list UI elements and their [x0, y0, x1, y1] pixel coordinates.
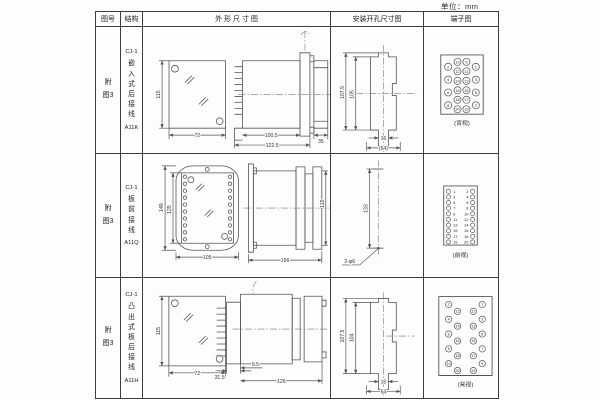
dim-side-length: 156 — [281, 258, 290, 264]
svg-text:11: 11 — [464, 69, 468, 74]
svg-text:15: 15 — [471, 339, 475, 343]
terminal-dots-left — [183, 175, 186, 241]
fig-no-row3: 附图3 — [96, 278, 121, 398]
svg-text:14: 14 — [455, 324, 459, 328]
dim-side-height: 115 — [320, 199, 326, 207]
install-drawing-a11q: 133 2-φ6 — [331, 154, 423, 277]
svg-text:2: 2 — [448, 303, 450, 307]
dimension-table: 图号 结构 外 形 尺 寸 图 安装开孔尺寸图 端子图 附图3 CJ-1 嵌入式… — [95, 11, 499, 399]
model-label: CJ-1 — [125, 292, 137, 298]
install-cell-row3: 107.5 104 16 64 — [331, 278, 424, 398]
svg-text:1: 1 — [481, 303, 483, 307]
svg-text:17: 17 — [453, 234, 457, 239]
svg-text:16: 16 — [455, 339, 459, 343]
svg-text:14: 14 — [464, 223, 469, 228]
view-label: (前视) — [453, 251, 469, 259]
terminal-diagram-a11k: 2468135710121416182091113151719 (背视) — [424, 27, 498, 153]
dim-install-slot: 16 — [381, 380, 387, 386]
svg-text:6: 6 — [448, 332, 450, 336]
svg-text:11: 11 — [453, 217, 457, 222]
svg-text:17: 17 — [471, 354, 475, 358]
outline-cell-row1: 115 72 100.5 122.5 35 — [143, 27, 331, 154]
dim-side-outer: 122.5 — [266, 143, 279, 149]
dim-front-height: 115 — [156, 90, 162, 98]
svg-text:7: 7 — [481, 347, 483, 351]
svg-text:4: 4 — [466, 194, 469, 199]
type-code: A11H — [124, 378, 138, 384]
svg-text:3: 3 — [453, 194, 456, 199]
terminal-diagram-a11h: 2468101214161820111315171913579 (背视) — [424, 278, 498, 398]
dim-install-inner-h: 104 — [350, 334, 356, 343]
install-drawing-a11k: 107.5 105 16 (64) — [331, 27, 423, 153]
svg-text:2: 2 — [466, 189, 468, 194]
dim-install-outer-h: 107.5 — [340, 86, 346, 99]
terminal-circles: 1234567891011121314151617181920 — [446, 189, 474, 245]
view-label: (背视) — [454, 119, 470, 127]
install-cell-row1: 107.5 105 16 (64) — [331, 27, 424, 154]
svg-text:13: 13 — [471, 324, 475, 328]
dim-side-base: 31.5 — [215, 375, 225, 381]
fig-no-row1: 附图3 — [96, 27, 121, 154]
outline-drawing-a11h: 115 72 31.5 9.5 126 — [143, 278, 330, 398]
svg-text:16: 16 — [464, 228, 469, 233]
svg-text:12: 12 — [455, 69, 459, 74]
dim-front-width: 72 — [194, 371, 200, 377]
fig-no-row2: 附图3 — [96, 154, 121, 278]
svg-text:9: 9 — [465, 59, 467, 64]
datasheet-page: { "unit_label": "单位：mm", "headers": { "f… — [0, 0, 600, 400]
svg-text:6: 6 — [466, 200, 469, 205]
dim-front-width: 105 — [203, 255, 212, 261]
header-structure: 结构 — [121, 12, 143, 27]
dim-side-length: 126 — [277, 379, 286, 385]
dim-front-outer-h: 149 — [159, 203, 165, 212]
model-label: CJ-1 — [125, 49, 137, 55]
mounting-label: 嵌入式后接线 — [126, 59, 138, 120]
structure-row2: CJ-1 板前接线 A11Q — [121, 154, 143, 278]
svg-text:9: 9 — [453, 211, 455, 216]
dim-hole-span: 133 — [364, 204, 370, 213]
terminal-dots-right — [228, 175, 231, 241]
install-cell-row2: 133 2-φ6 — [331, 154, 424, 278]
view-label: (背视) — [458, 380, 474, 388]
svg-text:5: 5 — [481, 332, 483, 336]
svg-text:4: 4 — [448, 318, 450, 322]
svg-text:1: 1 — [475, 64, 477, 69]
mounting-label: 板前接线 — [126, 195, 138, 236]
svg-text:12: 12 — [464, 217, 468, 222]
svg-text:8: 8 — [448, 347, 450, 351]
svg-text:3: 3 — [481, 318, 483, 322]
terminal-cell-row2: 1234567891011121314151617181920 (前视) — [424, 154, 498, 278]
svg-text:15: 15 — [453, 228, 458, 233]
svg-text:19: 19 — [471, 369, 475, 373]
svg-text:19: 19 — [464, 107, 468, 112]
svg-text:20: 20 — [464, 239, 469, 244]
dim-front-width: 72 — [194, 133, 200, 139]
terminal-circles: 2468135710121416182091113151719 — [445, 58, 480, 112]
dim-front-height: 115 — [156, 327, 162, 335]
terminal-circles: 2468101214161820111315171913579 — [446, 301, 486, 373]
svg-text:1: 1 — [453, 189, 455, 194]
svg-text:10: 10 — [464, 211, 469, 216]
svg-text:10: 10 — [447, 362, 451, 366]
svg-text:9: 9 — [481, 362, 483, 366]
svg-text:19: 19 — [453, 239, 457, 244]
outline-cell-row3: 115 72 31.5 9.5 126 — [143, 278, 331, 398]
install-drawing-a11h: 107.5 104 16 64 — [331, 278, 423, 398]
dim-install-outer-h: 107.5 — [340, 329, 346, 342]
svg-text:5: 5 — [453, 200, 456, 205]
svg-text:2: 2 — [447, 64, 449, 69]
type-code: A11K — [125, 125, 139, 131]
svg-text:17: 17 — [464, 97, 468, 102]
structure-row1: CJ-1 嵌入式后接线 A11K — [121, 27, 143, 154]
svg-text:18: 18 — [455, 354, 459, 358]
outline-drawing-a11k: 115 72 100.5 122.5 35 — [143, 27, 330, 153]
dim-side-step: 9.5 — [252, 362, 259, 368]
svg-text:8: 8 — [466, 206, 469, 211]
dim-install-span: 64 — [381, 389, 387, 395]
type-code: A11Q — [124, 240, 138, 246]
svg-text:18: 18 — [464, 234, 469, 239]
svg-text:7: 7 — [453, 206, 455, 211]
svg-text:11: 11 — [471, 310, 475, 314]
mounting-label: 凸出式板后接线 — [126, 302, 138, 373]
dim-front-inner-h: 125 — [167, 205, 173, 214]
dim-side-inner: 100.5 — [265, 133, 278, 139]
header-fig-no: 图号 — [96, 12, 121, 27]
terminal-cell-row1: 2468135710121416182091113151719 (背视) — [424, 27, 498, 154]
svg-text:20: 20 — [455, 369, 459, 373]
svg-text:13: 13 — [453, 223, 458, 228]
dim-side-plug: 35 — [318, 139, 324, 145]
svg-text:7: 7 — [475, 103, 477, 108]
dim-install-inner-h: 105 — [350, 90, 356, 99]
structure-row3: CJ-1 凸出式板后接线 A11H — [121, 278, 143, 398]
outline-drawing-a11q: 149 125 105 156 115 — [143, 154, 330, 277]
dim-install-span: (64) — [379, 146, 388, 152]
header-outline: 外 形 尺 寸 图 — [143, 12, 331, 27]
terminal-cell-row3: 2468101214161820111315171913579 (背视) — [424, 278, 498, 398]
dim-install-slot: 16 — [381, 136, 387, 142]
terminal-diagram-a11q: 1234567891011121314151617181920 (前视) — [424, 154, 498, 277]
header-terminal: 端子图 — [424, 12, 498, 27]
header-install: 安装开孔尺寸图 — [331, 12, 424, 27]
svg-text:12: 12 — [455, 310, 459, 314]
hole-size-label: 2-φ6 — [344, 259, 355, 265]
outline-cell-row2: 149 125 105 156 115 — [143, 154, 331, 278]
model-label: CJ-1 — [125, 185, 137, 191]
